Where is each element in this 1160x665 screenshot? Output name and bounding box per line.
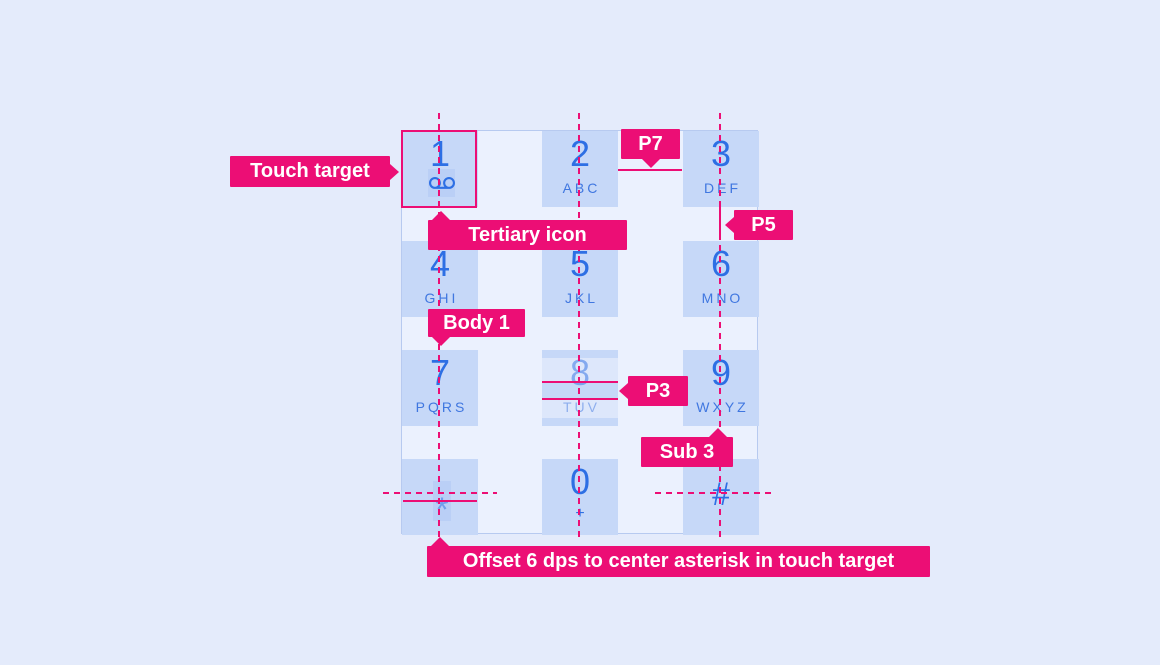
- asterisk-offset-line: [403, 500, 477, 502]
- arrow-left-icon: [619, 383, 628, 399]
- key-3-letters: DEF: [683, 180, 759, 196]
- arrow-down-icon: [432, 337, 450, 346]
- arrow-left-icon: [725, 217, 734, 233]
- key-6-digit: 6: [683, 241, 759, 287]
- key-0-plus: +: [542, 506, 618, 522]
- arrow-down-icon: [642, 159, 660, 168]
- key-7[interactable]: 7 PQRS: [402, 350, 478, 426]
- body1-label-text: Body 1: [443, 312, 510, 335]
- touch-target-outline: [401, 130, 477, 208]
- dialer-redline-spec: 1 2 ABC 3 DEF 4 GHI 5 JKL 6 MNO: [0, 0, 1160, 665]
- key-4[interactable]: 4 GHI: [402, 241, 478, 317]
- key-7-letters: PQRS: [402, 399, 478, 415]
- key-8[interactable]: 8 TUV: [542, 350, 618, 426]
- key-3[interactable]: 3 DEF: [683, 131, 759, 207]
- p7-label: P7: [621, 129, 680, 159]
- key-8-letters: TUV: [542, 399, 618, 415]
- p7-label-text: P7: [638, 133, 662, 156]
- column3-centerline: [719, 113, 721, 541]
- key-9[interactable]: 9 WXYZ: [683, 350, 759, 426]
- body1-label: Body 1: [428, 309, 525, 337]
- tertiary-icon-label-text: Tertiary icon: [468, 224, 587, 247]
- key-8-digit: 8: [542, 350, 618, 396]
- sub3-label: Sub 3: [641, 437, 733, 467]
- arrow-up-icon: [432, 211, 450, 220]
- touch-target-label-text: Touch target: [250, 160, 370, 183]
- p7-measure-line: [618, 169, 682, 171]
- arrow-up-icon: [431, 537, 449, 546]
- key-2-letters: ABC: [542, 180, 618, 196]
- p3-measure-line-bottom: [542, 398, 618, 400]
- key-9-digit: 9: [683, 350, 759, 396]
- offset-note-label-text: Offset 6 dps to center asterisk in touch…: [463, 550, 894, 573]
- offset-note-label: Offset 6 dps to center asterisk in touch…: [427, 546, 930, 577]
- key-6[interactable]: 6 MNO: [683, 241, 759, 317]
- column2-centerline: [578, 113, 580, 541]
- key-3-digit: 3: [683, 131, 759, 177]
- star-row-centerline: [383, 492, 497, 494]
- key-5-letters: JKL: [542, 290, 618, 306]
- key-2[interactable]: 2 ABC: [542, 131, 618, 207]
- arrow-up-icon: [709, 428, 727, 437]
- p5-label-text: P5: [751, 214, 775, 237]
- p5-measure-line: [719, 206, 721, 240]
- key-star[interactable]: *: [402, 459, 478, 535]
- p3-label: P3: [628, 376, 688, 406]
- arrow-right-icon: [390, 164, 399, 180]
- key-0[interactable]: 0 +: [542, 459, 618, 535]
- key-7-digit: 7: [402, 350, 478, 396]
- key-hash-glyph: #: [683, 456, 759, 532]
- tertiary-icon-label: Tertiary icon: [428, 220, 627, 250]
- sub3-label-text: Sub 3: [660, 441, 714, 464]
- key-5[interactable]: 5 JKL: [542, 241, 618, 317]
- key-0-digit: 0: [542, 459, 618, 505]
- key-4-letters: GHI: [402, 290, 478, 306]
- hash-row-centerline: [655, 492, 775, 494]
- key-9-letters: WXYZ: [683, 399, 759, 415]
- key-hash[interactable]: #: [683, 459, 759, 535]
- key-6-letters: MNO: [683, 290, 759, 306]
- touch-target-label: Touch target: [230, 156, 390, 187]
- key-2-digit: 2: [542, 131, 618, 177]
- p3-label-text: P3: [646, 380, 670, 403]
- p3-measure-line-top: [542, 381, 618, 383]
- p5-label: P5: [734, 210, 793, 240]
